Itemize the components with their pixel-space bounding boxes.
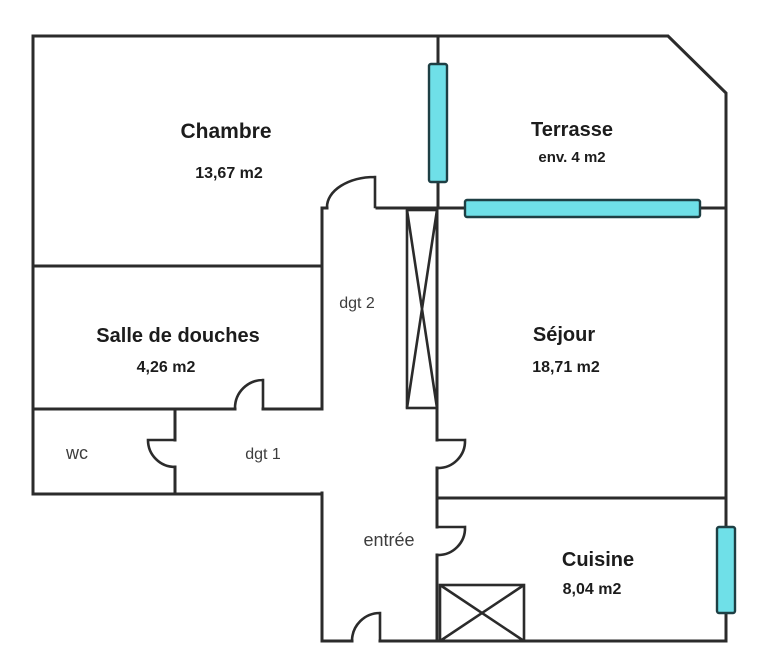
- door-cuisine: [437, 527, 465, 555]
- room-label-terrasse: Terrasse: [531, 119, 613, 141]
- door-sejour: [437, 440, 465, 468]
- shaft-cuisine-cross-box: [440, 585, 524, 641]
- window-cuisine: [717, 527, 735, 613]
- door-entree: [352, 613, 380, 641]
- shaft-tall-cross-box: [407, 210, 437, 408]
- room-label-salle-de-douches: Salle de douches: [96, 325, 259, 347]
- room-area-cuisine: 8,04 m2: [563, 581, 622, 598]
- floor-plan: Chambre 13,67 m2 Terrasse env. 4 m2 Sall…: [0, 0, 770, 670]
- room-area-chambre: 13,67 m2: [195, 165, 263, 182]
- door-chambre: [327, 177, 375, 207]
- room-label-cuisine: Cuisine: [562, 549, 634, 571]
- room-label-chambre: Chambre: [180, 120, 271, 143]
- room-area-terrasse: env. 4 m2: [538, 149, 605, 166]
- zone-label-wc: wc: [65, 443, 88, 463]
- zone-label-entree: entrée: [363, 530, 414, 550]
- room-area-sejour: 18,71 m2: [532, 359, 600, 376]
- floor-plan-drawing: Chambre 13,67 m2 Terrasse env. 4 m2 Sall…: [0, 0, 770, 670]
- window-chambre-terrasse: [429, 64, 447, 182]
- room-labels: Chambre 13,67 m2 Terrasse env. 4 m2 Sall…: [65, 119, 634, 598]
- door-wc: [148, 440, 175, 467]
- zone-label-dgt1: dgt 1: [245, 446, 281, 463]
- room-label-sejour: Séjour: [533, 324, 595, 346]
- door-salle-de-douches: [235, 380, 263, 408]
- room-area-salle-de-douches: 4,26 m2: [137, 359, 196, 376]
- zone-label-dgt2: dgt 2: [339, 295, 375, 312]
- window-terrasse-sejour: [465, 200, 700, 217]
- shafts: [407, 210, 524, 641]
